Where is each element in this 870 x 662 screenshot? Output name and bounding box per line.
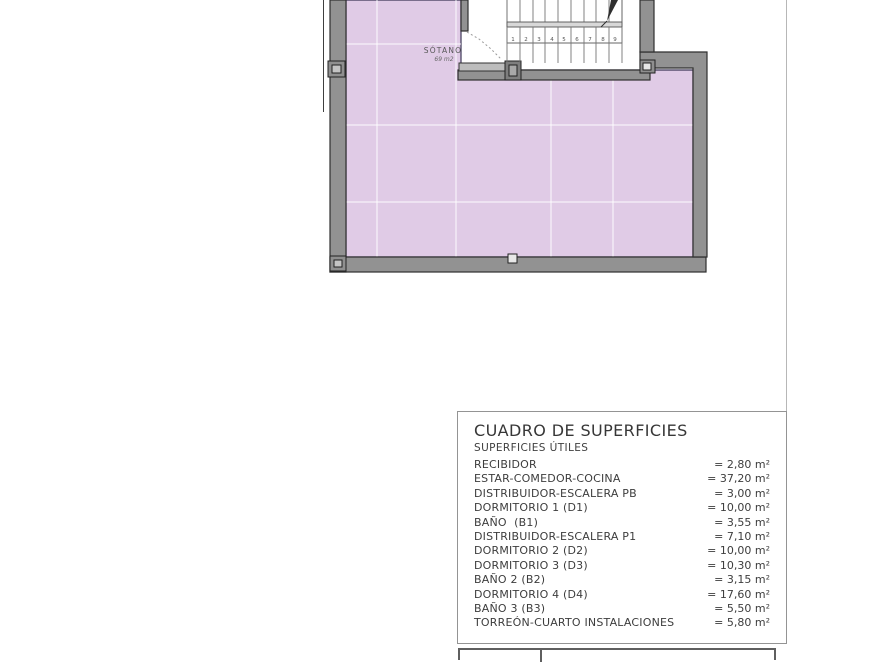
post-left-wall-core — [332, 65, 341, 73]
table-row: DORMITORIO 2 (D2)= 10,00 m² — [458, 544, 786, 558]
room-label: SÓTANO — [424, 46, 463, 55]
table-row: DISTRIBUIDOR-ESCALERA PB= 3,00 m² — [458, 487, 786, 501]
surfaces-table-rows: RECIBIDOR= 2,80 m² ESTAR-COMEDOR-COCINA=… — [458, 458, 786, 631]
surface-name: RECIBIDOR — [474, 458, 537, 472]
surface-name: BAÑO 2 (B2) — [474, 573, 545, 587]
surface-value: = 3,00 m² — [714, 487, 770, 501]
structural-posts — [328, 60, 655, 271]
step-number: 2 — [524, 37, 528, 43]
wall-stub-stair-left — [461, 0, 468, 31]
table-row: RECIBIDOR= 2,80 m² — [458, 458, 786, 472]
stair-step-numbers: 1 2 3 4 5 6 7 8 9 — [511, 37, 617, 43]
table-row: BAÑO (B1)= 3,55 m² — [458, 516, 786, 530]
surface-name: DORMITORIO 3 (D3) — [474, 559, 588, 573]
stair-rail-band — [507, 22, 622, 27]
step-number: 3 — [537, 37, 541, 43]
post-right — [640, 60, 655, 73]
surface-value: = 10,30 m² — [707, 559, 770, 573]
post-bottom-center — [508, 254, 517, 263]
stair-direction-arrow-tail — [601, 21, 607, 27]
table-row: ESTAR-COMEDOR-COCINA= 37,20 m² — [458, 472, 786, 486]
surface-name: DORMITORIO 4 (D4) — [474, 588, 588, 602]
floor-tile-gridlines — [346, 0, 693, 257]
section-dashed-line — [467, 32, 501, 59]
surface-name: DORMITORIO 1 (D1) — [474, 501, 588, 515]
post-bottom-left — [330, 256, 346, 271]
post-bottom-left-core — [334, 260, 342, 267]
step-number: 8 — [601, 37, 605, 43]
surface-value: = 37,20 m² — [707, 472, 770, 486]
surface-name: DORMITORIO 2 (D2) — [474, 544, 588, 558]
table-row: BAÑO 3 (B3)= 5,50 m² — [458, 602, 786, 616]
surfaces-table-title: CUADRO DE SUPERFICIES — [474, 421, 770, 440]
table-row: DORMITORIO 1 (D1)= 10,00 m² — [458, 501, 786, 515]
surface-name: BAÑO (B1) — [474, 516, 538, 530]
sheet-frame-line — [786, 0, 787, 411]
post-stair-core — [509, 65, 517, 76]
table-row: DORMITORIO 4 (D4)= 17,60 m² — [458, 588, 786, 602]
step-number: 4 — [550, 37, 554, 43]
step-number: 7 — [588, 37, 592, 43]
surface-name: BAÑO 3 (B3) — [474, 602, 545, 616]
wall-left — [330, 0, 346, 272]
surface-name: ESTAR-COMEDOR-COCINA — [474, 472, 621, 486]
surfaces-table-subtitle: SUPERFICIES ÚTILES — [474, 442, 770, 454]
surface-value: = 7,10 m² — [714, 530, 770, 544]
surface-value: = 5,80 m² — [714, 616, 770, 630]
post-stair — [505, 61, 521, 80]
table-row: BAÑO 2 (B2)= 3,15 m² — [458, 573, 786, 587]
surface-value: = 17,60 m² — [707, 588, 770, 602]
step-number: 1 — [511, 37, 515, 43]
step-number: 9 — [613, 37, 617, 43]
post-left-wall — [328, 61, 345, 77]
surface-value: = 5,50 m² — [714, 602, 770, 616]
wall-stairwell-right — [640, 0, 654, 52]
surface-value: = 10,00 m² — [707, 501, 770, 515]
surfaces-table: CUADRO DE SUPERFICIES SUPERFICIES ÚTILES… — [457, 411, 787, 644]
stair-treads-upper — [507, 0, 609, 22]
step-number: 5 — [562, 37, 566, 43]
surface-name: TORREÓN-CUARTO INSTALACIONES — [474, 616, 674, 630]
surface-value: = 2,80 m² — [714, 458, 770, 472]
surface-name: DISTRIBUIDOR-ESCALERA P1 — [474, 530, 636, 544]
wall-right-and-top — [640, 52, 707, 257]
wall-under-stairs — [458, 70, 650, 80]
wall-bottom — [330, 257, 706, 272]
table-row: TORREÓN-CUARTO INSTALACIONES= 5,80 m² — [458, 616, 786, 630]
table-row: DORMITORIO 3 (D3)= 10,30 m² — [458, 559, 786, 573]
room-area-label: 69 m2 — [434, 56, 453, 63]
stair-flight-outline — [507, 0, 622, 43]
stair-direction-arrow — [607, 0, 618, 21]
surface-value: = 3,15 m² — [714, 573, 770, 587]
post-right-core — [643, 63, 651, 70]
surface-value: = 10,00 m² — [707, 544, 770, 558]
step-number: 6 — [575, 37, 579, 43]
title-block-partial — [458, 648, 776, 660]
basement-floor-area — [346, 0, 693, 257]
stair-landing-edge — [459, 63, 507, 71]
floor-plan-drawing: 1 2 3 4 5 6 7 8 9 SÓTANO 69 m2 — [0, 0, 870, 330]
staircase: 1 2 3 4 5 6 7 8 9 — [467, 0, 622, 63]
stair-treads-lower — [507, 27, 622, 63]
table-row: DISTRIBUIDOR-ESCALERA P1= 7,10 m² — [458, 530, 786, 544]
surface-name: DISTRIBUIDOR-ESCALERA PB — [474, 487, 637, 501]
surface-value: = 3,55 m² — [714, 516, 770, 530]
